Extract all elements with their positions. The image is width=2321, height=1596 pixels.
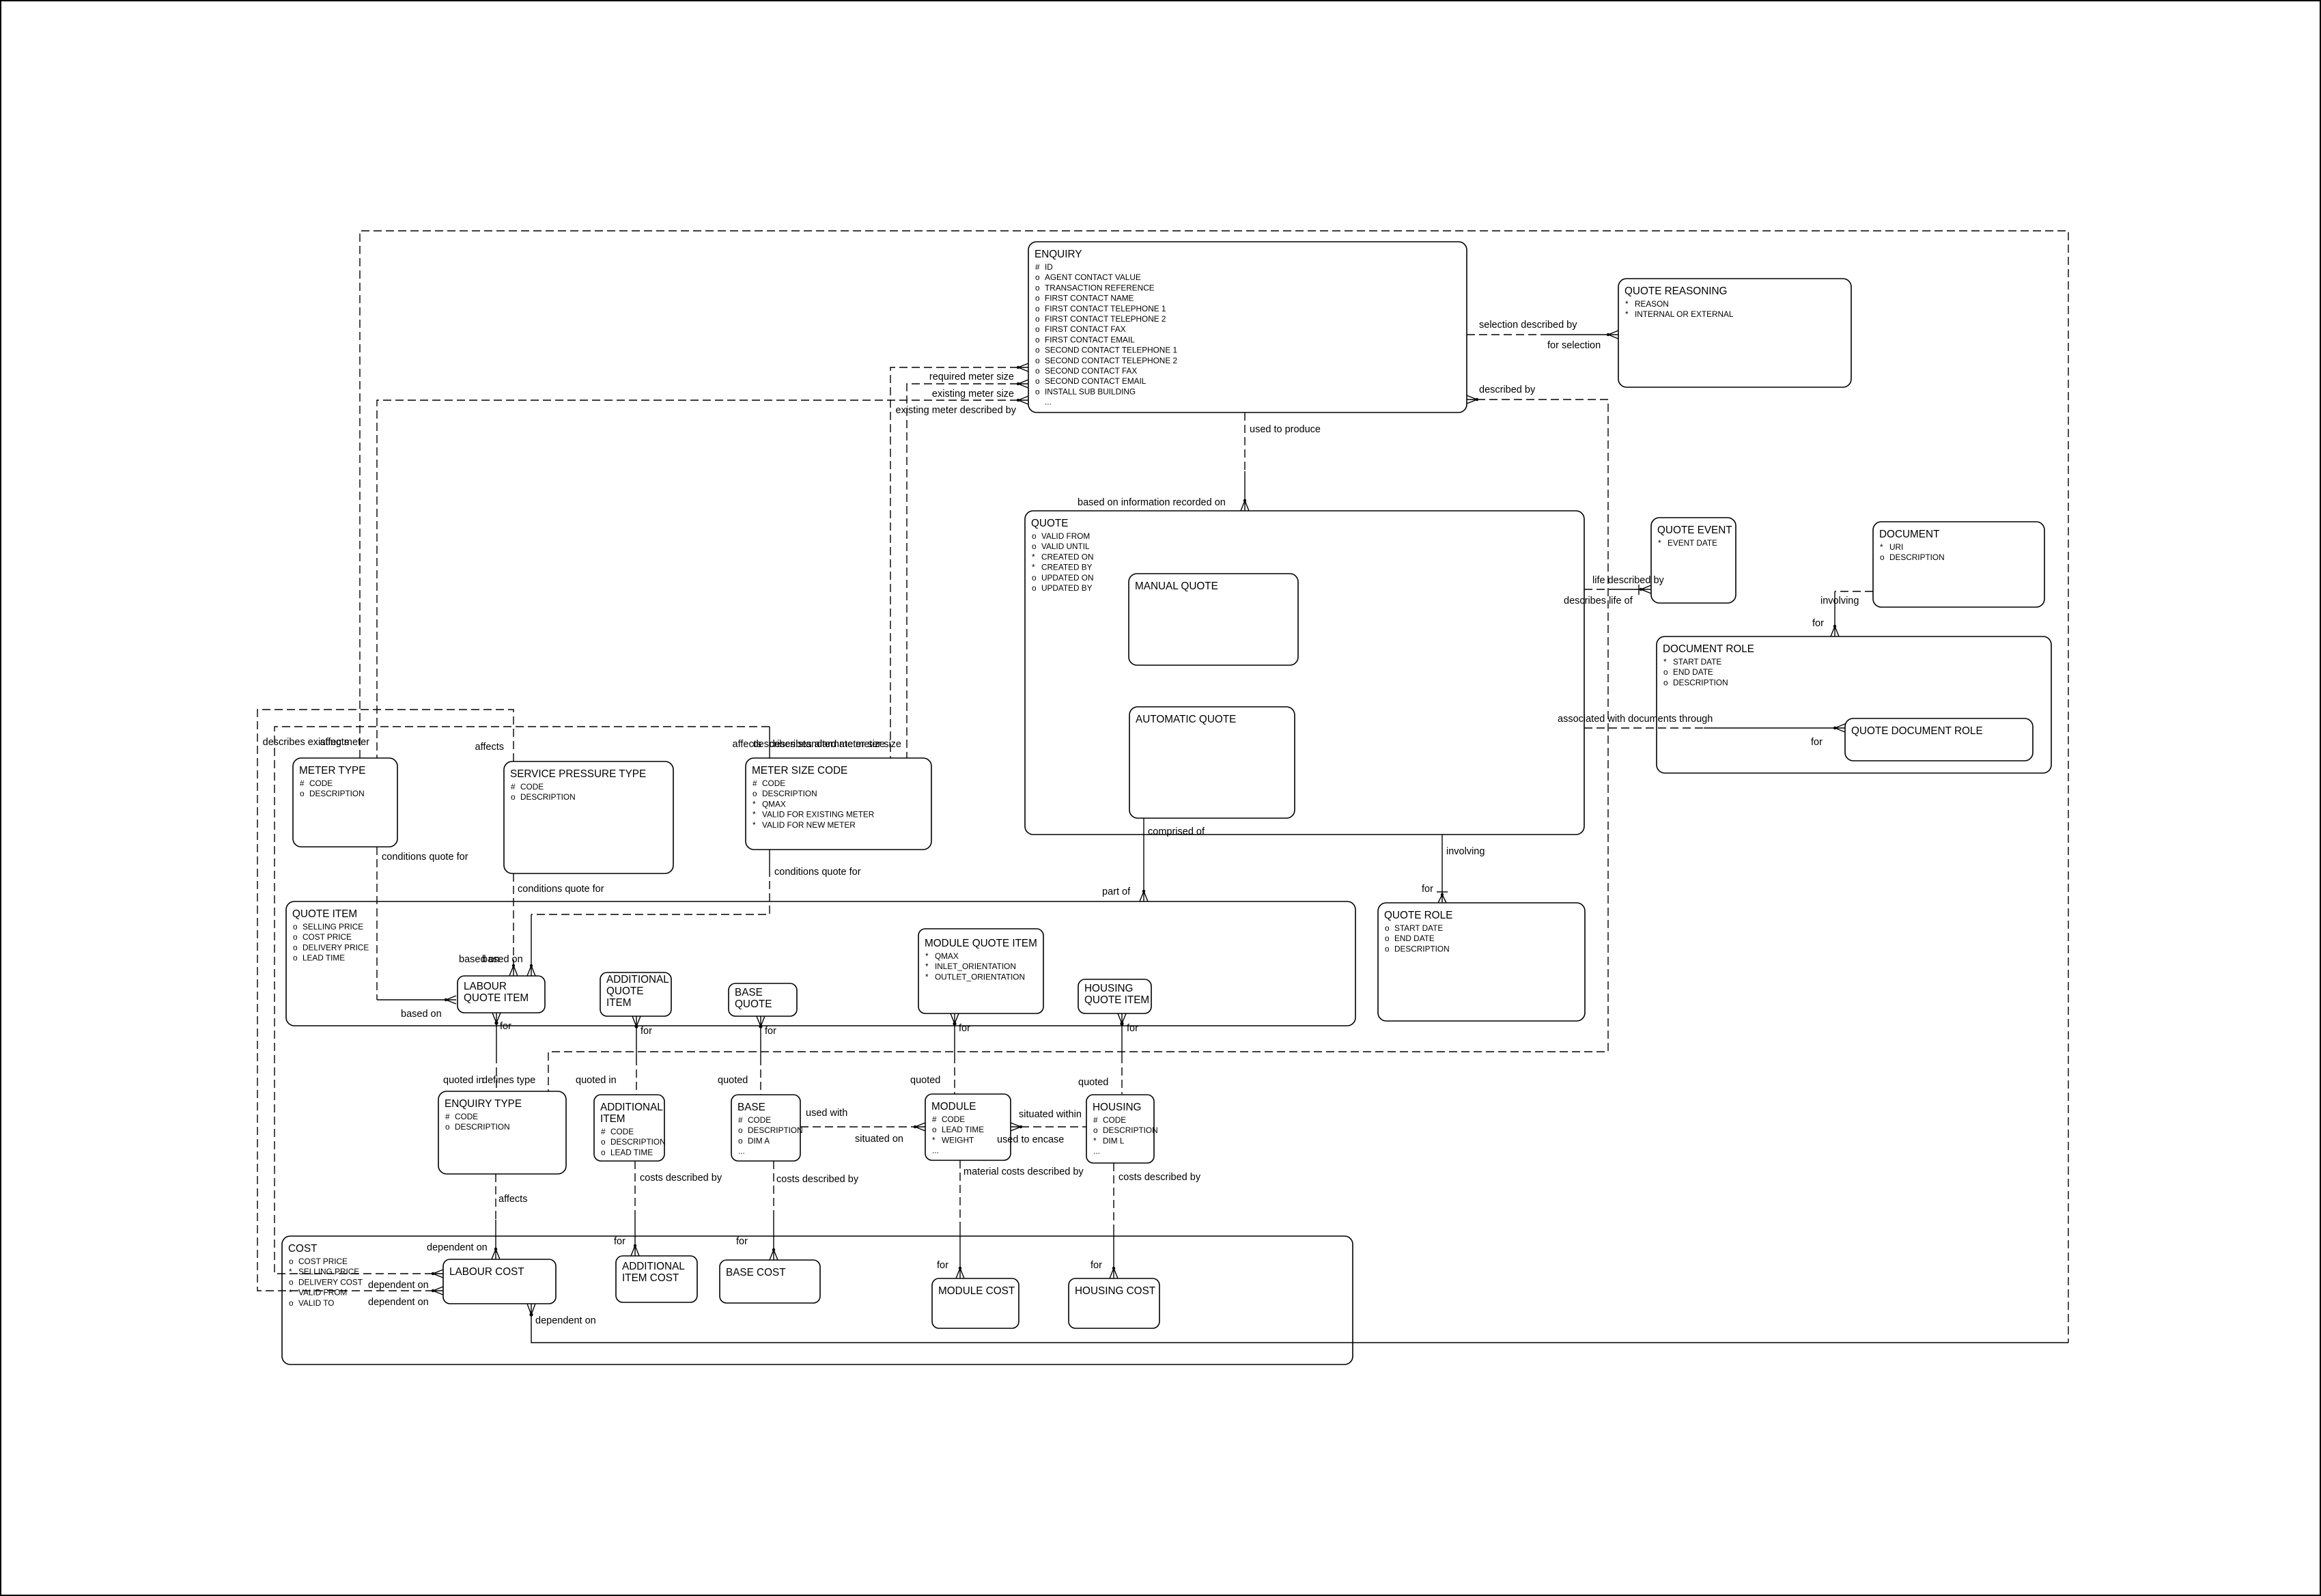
- svg-text:for: for: [1812, 618, 1824, 629]
- svg-text:affects: affects: [733, 739, 761, 750]
- svg-text:DOCUMENT ROLE: DOCUMENT ROLE: [1663, 643, 1754, 655]
- svg-text:o: o: [1032, 531, 1037, 541]
- svg-text:...: ...: [1093, 1147, 1100, 1156]
- svg-text:UPDATED ON: UPDATED ON: [1041, 573, 1093, 583]
- svg-text:QUOTE EVENT: QUOTE EVENT: [1657, 524, 1732, 536]
- svg-text:METER SIZE CODE: METER SIZE CODE: [752, 765, 847, 776]
- svg-text:existing meter size: existing meter size: [932, 389, 1014, 400]
- svg-text:DIM L: DIM L: [1103, 1136, 1125, 1145]
- svg-text:...: ...: [738, 1147, 745, 1156]
- svg-text:SELLING PRICE: SELLING PRICE: [298, 1267, 359, 1276]
- svg-text:o: o: [289, 1257, 294, 1266]
- svg-text:life described by: life described by: [1592, 575, 1665, 586]
- svg-text:for: for: [641, 1026, 652, 1037]
- svg-text:END DATE: END DATE: [1673, 667, 1713, 677]
- svg-text:for: for: [1811, 737, 1823, 748]
- svg-text:LABOUR COST: LABOUR COST: [449, 1266, 524, 1278]
- svg-text:CODE: CODE: [762, 779, 785, 788]
- svg-text:BASE: BASE: [737, 1102, 765, 1113]
- svg-text:conditions quote for: conditions quote for: [518, 884, 604, 895]
- svg-text:o: o: [293, 942, 298, 952]
- svg-text:part of: part of: [1102, 886, 1131, 897]
- svg-text:LEAD TIME: LEAD TIME: [942, 1125, 984, 1134]
- svg-text:quoted in: quoted in: [443, 1075, 484, 1086]
- svg-text:based on: based on: [401, 1009, 442, 1020]
- svg-text:*: *: [925, 951, 929, 961]
- svg-text:for: for: [1127, 1023, 1138, 1034]
- svg-text:*: *: [752, 810, 756, 820]
- svg-text:describes life of: describes life of: [1564, 596, 1633, 606]
- svg-text:ITEM: ITEM: [606, 997, 632, 1009]
- svg-text:*: *: [1625, 299, 1629, 309]
- svg-text:CREATED ON: CREATED ON: [1041, 552, 1093, 561]
- svg-text:#: #: [1093, 1115, 1098, 1125]
- svg-text:o: o: [1035, 304, 1040, 313]
- svg-text:o: o: [445, 1122, 450, 1132]
- svg-text:HOUSING COST: HOUSING COST: [1075, 1285, 1155, 1297]
- svg-text:for: for: [500, 1021, 511, 1032]
- svg-text:o: o: [1035, 387, 1040, 396]
- svg-text:MODULE COST: MODULE COST: [938, 1285, 1015, 1297]
- svg-text:*: *: [1625, 309, 1629, 319]
- svg-text:for: for: [736, 1236, 748, 1247]
- svg-text:CODE: CODE: [1103, 1115, 1126, 1125]
- svg-text:quoted: quoted: [910, 1075, 940, 1086]
- svg-text:DESCRIPTION: DESCRIPTION: [455, 1122, 510, 1132]
- svg-text:dependent on: dependent on: [368, 1297, 429, 1308]
- svg-text:for: for: [765, 1026, 776, 1037]
- svg-text:SECOND CONTACT FAX: SECOND CONTACT FAX: [1045, 366, 1137, 376]
- svg-text:DESCRIPTION: DESCRIPTION: [1394, 944, 1450, 953]
- svg-text:BASE COST: BASE COST: [726, 1267, 786, 1278]
- svg-text:INTERNAL OR EXTERNAL: INTERNAL OR EXTERNAL: [1635, 309, 1734, 319]
- svg-text:o: o: [932, 1125, 937, 1134]
- svg-text:costs described by: costs described by: [776, 1174, 859, 1185]
- svg-text:DESCRIPTION: DESCRIPTION: [1103, 1125, 1158, 1135]
- svg-text:CODE: CODE: [309, 779, 333, 788]
- svg-text:based on: based on: [459, 954, 500, 965]
- svg-text:LEAD TIME: LEAD TIME: [303, 953, 345, 963]
- svg-text:FIRST CONTACT NAME: FIRST CONTACT NAME: [1045, 294, 1134, 303]
- svg-text:ENQUIRY TYPE: ENQUIRY TYPE: [445, 1098, 522, 1110]
- svg-text:o: o: [601, 1147, 606, 1157]
- svg-text:#: #: [601, 1127, 606, 1136]
- svg-text:START DATE: START DATE: [1394, 923, 1443, 933]
- svg-text:o: o: [289, 1277, 294, 1287]
- svg-text:ENQUIRY: ENQUIRY: [1035, 249, 1082, 260]
- svg-text:CREATED BY: CREATED BY: [1041, 563, 1093, 572]
- svg-text:dependent on: dependent on: [427, 1242, 488, 1253]
- svg-text:required meter size: required meter size: [929, 372, 1014, 382]
- svg-text:for: for: [937, 1260, 948, 1271]
- svg-text:QUOTE: QUOTE: [1031, 518, 1068, 529]
- svg-text:quoted: quoted: [718, 1075, 748, 1086]
- svg-text:CODE: CODE: [610, 1127, 634, 1136]
- svg-text:SELLING PRICE: SELLING PRICE: [303, 922, 363, 932]
- svg-text:CODE: CODE: [520, 782, 544, 792]
- svg-text:HOUSING: HOUSING: [1084, 983, 1133, 994]
- svg-text:dependent on: dependent on: [535, 1315, 596, 1326]
- svg-text:LEAD TIME: LEAD TIME: [610, 1147, 653, 1157]
- svg-text:used with: used with: [806, 1108, 847, 1119]
- svg-text:ITEM COST: ITEM COST: [622, 1272, 679, 1284]
- svg-text:QUOTE ITEM: QUOTE ITEM: [292, 908, 357, 920]
- svg-text:o: o: [511, 792, 516, 802]
- svg-text:o: o: [1663, 667, 1668, 677]
- svg-text:affects: affects: [475, 742, 504, 753]
- svg-text:REASON: REASON: [1635, 299, 1669, 309]
- svg-text:ADDITIONAL: ADDITIONAL: [606, 974, 669, 985]
- svg-text:SECOND CONTACT TELEPHONE 1: SECOND CONTACT TELEPHONE 1: [1045, 346, 1177, 355]
- svg-text:for: for: [959, 1023, 970, 1034]
- svg-text:affects: affects: [498, 1194, 527, 1205]
- svg-text:VALID FOR NEW METER: VALID FOR NEW METER: [762, 820, 856, 830]
- svg-text:o: o: [738, 1125, 743, 1135]
- svg-text:MODULE QUOTE ITEM: MODULE QUOTE ITEM: [925, 938, 1037, 949]
- svg-text:FIRST CONTACT FAX: FIRST CONTACT FAX: [1045, 324, 1126, 334]
- svg-text:SERVICE PRESSURE TYPE: SERVICE PRESSURE TYPE: [510, 768, 646, 780]
- svg-text:CODE: CODE: [455, 1112, 478, 1121]
- svg-text:*: *: [1663, 657, 1667, 667]
- svg-text:o: o: [293, 953, 298, 963]
- svg-text:DELIVERY PRICE: DELIVERY PRICE: [303, 942, 369, 952]
- svg-text:FIRST CONTACT TELEPHONE 1: FIRST CONTACT TELEPHONE 1: [1045, 304, 1166, 313]
- svg-text:VALID UNTIL: VALID UNTIL: [1041, 542, 1090, 551]
- svg-text:EVENT DATE: EVENT DATE: [1668, 538, 1717, 548]
- svg-text:o: o: [1880, 552, 1885, 562]
- svg-text:for: for: [614, 1236, 625, 1247]
- svg-text:associated with documents thro: associated with documents through: [1558, 714, 1713, 725]
- svg-text:ADDITIONAL: ADDITIONAL: [622, 1261, 685, 1272]
- svg-text:ITEM: ITEM: [600, 1113, 625, 1125]
- svg-text:defines type: defines type: [482, 1075, 535, 1086]
- svg-text:o: o: [1035, 272, 1040, 282]
- svg-text:*: *: [752, 799, 756, 809]
- svg-text:...: ...: [1045, 397, 1052, 407]
- svg-text:QMAX: QMAX: [762, 799, 786, 809]
- svg-text:DESCRIPTION: DESCRIPTION: [748, 1125, 803, 1135]
- svg-text:MANUAL QUOTE: MANUAL QUOTE: [1135, 580, 1218, 592]
- svg-text:material costs described by: material costs described by: [963, 1166, 1084, 1177]
- svg-text:SECOND CONTACT EMAIL: SECOND CONTACT EMAIL: [1045, 376, 1147, 386]
- svg-text:AUTOMATIC QUOTE: AUTOMATIC QUOTE: [1136, 714, 1236, 725]
- svg-text:#: #: [511, 782, 516, 792]
- svg-text:CODE: CODE: [748, 1115, 771, 1125]
- svg-text:*: *: [925, 972, 929, 981]
- svg-text:DESCRIPTION: DESCRIPTION: [610, 1137, 666, 1147]
- svg-text:o: o: [293, 922, 298, 932]
- svg-text:o: o: [1035, 376, 1040, 386]
- svg-text:LABOUR: LABOUR: [464, 981, 507, 992]
- svg-text:*: *: [289, 1267, 292, 1276]
- svg-text:for: for: [1091, 1260, 1102, 1271]
- svg-text:#: #: [738, 1115, 743, 1125]
- svg-text:used to encase: used to encase: [997, 1134, 1064, 1145]
- svg-text:OUTLET_ORIENTATION: OUTLET_ORIENTATION: [935, 972, 1025, 981]
- svg-text:INLET_ORIENTATION: INLET_ORIENTATION: [935, 962, 1016, 971]
- svg-text:QMAX: QMAX: [935, 951, 959, 961]
- svg-text:VALID FROM: VALID FROM: [298, 1288, 347, 1298]
- svg-text:ID: ID: [1045, 262, 1053, 272]
- svg-text:conditions quote for: conditions quote for: [774, 867, 861, 878]
- svg-text:CODE: CODE: [942, 1115, 965, 1124]
- svg-text:for: for: [1422, 884, 1433, 895]
- svg-text:#: #: [445, 1112, 450, 1121]
- svg-text:o: o: [752, 789, 757, 798]
- svg-text:VALID TO: VALID TO: [298, 1298, 334, 1308]
- svg-text:for selection: for selection: [1547, 340, 1601, 351]
- svg-text:DESCRIPTION: DESCRIPTION: [1889, 552, 1945, 562]
- svg-text:#: #: [932, 1115, 937, 1124]
- svg-text:DESCRIPTION: DESCRIPTION: [309, 789, 365, 798]
- svg-text:#: #: [1035, 262, 1040, 272]
- svg-text:COST PRICE: COST PRICE: [298, 1257, 348, 1266]
- svg-text:...: ...: [932, 1146, 939, 1156]
- svg-text:COST PRICE: COST PRICE: [303, 932, 352, 942]
- svg-text:QUOTE ITEM: QUOTE ITEM: [464, 992, 529, 1004]
- svg-text:QUOTE: QUOTE: [606, 985, 643, 997]
- svg-text:HOUSING: HOUSING: [1093, 1102, 1141, 1113]
- svg-text:START DATE: START DATE: [1673, 657, 1721, 667]
- svg-text:o: o: [1032, 542, 1037, 551]
- svg-text:DESCRIPTION: DESCRIPTION: [520, 792, 576, 802]
- svg-text:#: #: [300, 779, 305, 788]
- svg-text:o: o: [1035, 283, 1040, 292]
- svg-text:VALID FROM: VALID FROM: [1041, 531, 1090, 541]
- svg-text:QUOTE ROLE: QUOTE ROLE: [1384, 910, 1452, 921]
- svg-text:o: o: [293, 932, 298, 942]
- svg-text:o: o: [289, 1298, 294, 1308]
- svg-text:QUOTE REASONING: QUOTE REASONING: [1624, 285, 1727, 297]
- svg-text:DESCRIPTION: DESCRIPTION: [762, 789, 817, 798]
- svg-text:o: o: [1035, 294, 1040, 303]
- svg-text:dependent on: dependent on: [368, 1280, 429, 1291]
- svg-text:situated on: situated on: [855, 1134, 903, 1145]
- svg-text:DIM A: DIM A: [748, 1136, 770, 1145]
- svg-text:WEIGHT: WEIGHT: [942, 1135, 974, 1145]
- svg-text:o: o: [1035, 366, 1040, 376]
- svg-text:UPDATED BY: UPDATED BY: [1041, 583, 1093, 593]
- svg-text:DOCUMENT: DOCUMENT: [1879, 529, 1939, 540]
- svg-text:AGENT CONTACT VALUE: AGENT CONTACT VALUE: [1045, 272, 1141, 282]
- svg-text:comprised of: comprised of: [1148, 826, 1205, 837]
- svg-text:o: o: [1035, 346, 1040, 355]
- svg-text:MODULE: MODULE: [931, 1101, 976, 1112]
- svg-text:END DATE: END DATE: [1394, 934, 1435, 943]
- svg-text:TRANSACTION REFERENCE: TRANSACTION REFERENCE: [1045, 283, 1155, 292]
- svg-text:existing meter described by: existing meter described by: [896, 405, 1017, 416]
- svg-text:*: *: [1658, 538, 1661, 548]
- svg-text:involving: involving: [1446, 846, 1485, 857]
- svg-text:BASE: BASE: [735, 987, 763, 998]
- svg-text:used to produce: used to produce: [1250, 424, 1321, 435]
- svg-text:*: *: [1032, 552, 1035, 561]
- svg-text:costs described by: costs described by: [640, 1173, 722, 1184]
- svg-text:#: #: [752, 779, 757, 788]
- svg-text:QUOTE DOCUMENT ROLE: QUOTE DOCUMENT ROLE: [1851, 725, 1983, 737]
- svg-text:QUOTE ITEM: QUOTE ITEM: [1084, 994, 1149, 1006]
- svg-text:o: o: [601, 1137, 606, 1147]
- svg-text:DESCRIPTION: DESCRIPTION: [1673, 677, 1728, 687]
- svg-text:o: o: [738, 1136, 743, 1145]
- svg-text:*: *: [289, 1288, 292, 1298]
- svg-text:o: o: [1035, 356, 1040, 365]
- svg-text:o: o: [1032, 573, 1037, 583]
- svg-text:conditions quote for: conditions quote for: [382, 852, 468, 863]
- svg-text:ADDITIONAL: ADDITIONAL: [600, 1102, 663, 1113]
- svg-text:o: o: [1385, 944, 1390, 953]
- svg-text:COST: COST: [288, 1243, 318, 1255]
- svg-text:INSTALL SUB BUILDING: INSTALL SUB BUILDING: [1045, 387, 1136, 396]
- svg-text:o: o: [300, 789, 305, 798]
- svg-text:situated within: situated within: [1019, 1109, 1082, 1120]
- svg-text:describes existing meter: describes existing meter: [263, 737, 370, 748]
- svg-text:QUOTE: QUOTE: [735, 998, 772, 1010]
- svg-text:VALID FOR EXISTING METER: VALID FOR EXISTING METER: [762, 810, 874, 820]
- svg-text:describes alternate meter size: describes alternate meter size: [770, 739, 901, 750]
- svg-text:o: o: [1385, 923, 1390, 933]
- svg-text:involving: involving: [1820, 596, 1859, 606]
- svg-text:*: *: [932, 1135, 936, 1145]
- svg-text:DELIVERY COST: DELIVERY COST: [298, 1277, 363, 1287]
- svg-text:o: o: [1035, 335, 1040, 344]
- svg-text:*: *: [1880, 542, 1883, 552]
- svg-text:o: o: [1663, 677, 1668, 687]
- svg-text:*: *: [1093, 1136, 1097, 1145]
- svg-text:*: *: [1032, 563, 1035, 572]
- svg-text:*: *: [752, 820, 756, 830]
- svg-text:o: o: [1032, 583, 1037, 593]
- svg-text:SECOND CONTACT TELEPHONE 2: SECOND CONTACT TELEPHONE 2: [1045, 356, 1177, 365]
- svg-text:o: o: [1093, 1125, 1098, 1135]
- svg-text:quoted: quoted: [1078, 1077, 1108, 1088]
- svg-text:o: o: [1035, 324, 1040, 334]
- svg-text:URI: URI: [1889, 542, 1903, 552]
- svg-text:costs described by: costs described by: [1119, 1172, 1201, 1183]
- svg-text:selection described by: selection described by: [1479, 320, 1577, 331]
- svg-text:o: o: [1385, 934, 1390, 943]
- svg-text:quoted in: quoted in: [576, 1075, 617, 1086]
- svg-text:*: *: [925, 962, 929, 971]
- svg-text:affects: affects: [320, 737, 349, 748]
- svg-text:FIRST CONTACT EMAIL: FIRST CONTACT EMAIL: [1045, 335, 1135, 344]
- svg-text:based on information recorded: based on information recorded on: [1078, 497, 1226, 508]
- svg-text:o: o: [1035, 314, 1040, 324]
- svg-text:METER TYPE: METER TYPE: [299, 765, 365, 776]
- svg-text:described by: described by: [1479, 384, 1536, 395]
- svg-text:FIRST CONTACT TELEPHONE 2: FIRST CONTACT TELEPHONE 2: [1045, 314, 1166, 324]
